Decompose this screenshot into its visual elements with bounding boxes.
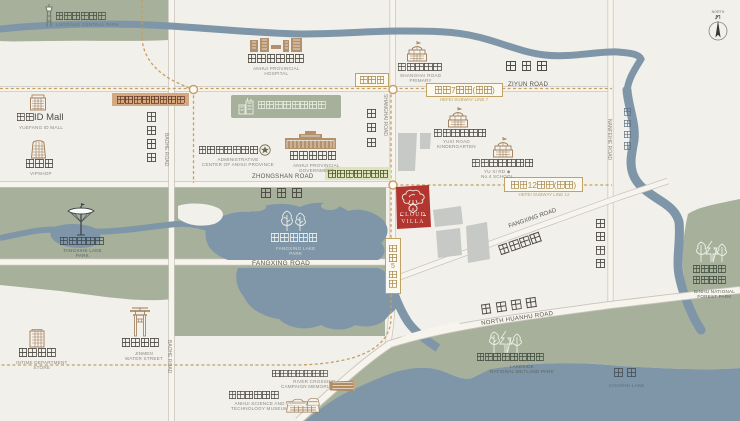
svg-text:NORTH: NORTH: [712, 10, 725, 14]
